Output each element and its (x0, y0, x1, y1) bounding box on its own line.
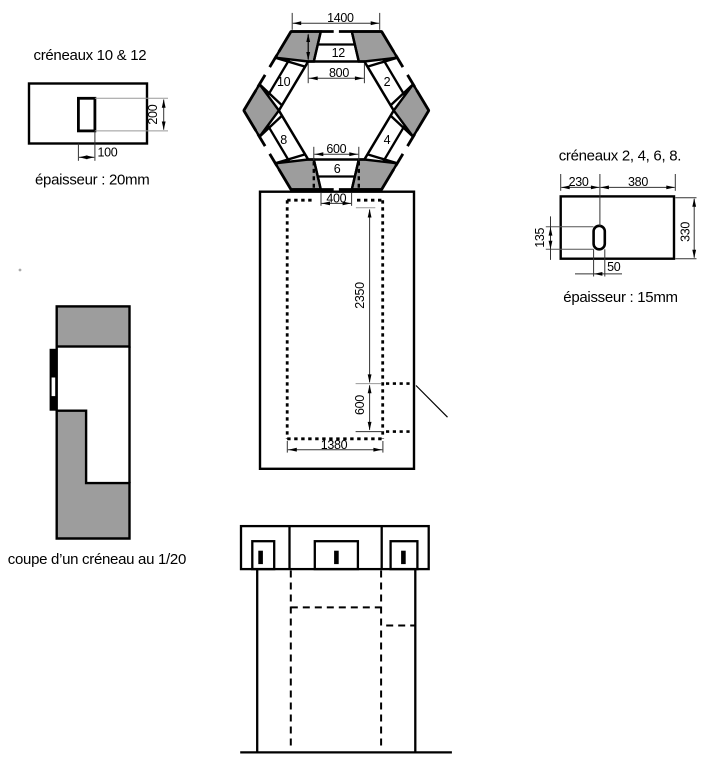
svg-text:135: 135 (533, 227, 547, 247)
svg-text:2350: 2350 (353, 282, 367, 309)
svg-text:800: 800 (329, 66, 349, 80)
svg-text:1400: 1400 (327, 11, 354, 25)
svg-text:6: 6 (334, 162, 341, 176)
svg-text:10: 10 (277, 75, 291, 89)
svg-text:épaisseur : 20mm: épaisseur : 20mm (35, 172, 149, 189)
svg-text:230: 230 (569, 175, 589, 189)
svg-text:200: 200 (146, 104, 160, 124)
svg-text:100: 100 (98, 145, 118, 159)
svg-text:4: 4 (384, 133, 391, 147)
svg-text:épaisseur : 15mm: épaisseur : 15mm (563, 289, 677, 306)
svg-text:330: 330 (679, 222, 693, 242)
svg-text:400: 400 (326, 192, 346, 206)
svg-text:créneaux 2, 4, 6, 8.: créneaux 2, 4, 6, 8. (559, 148, 681, 165)
svg-text:600: 600 (326, 142, 346, 156)
svg-text:12: 12 (332, 46, 346, 60)
svg-text:coupe d’un créneau au 1/20: coupe d’un créneau au 1/20 (8, 551, 186, 568)
svg-text:2: 2 (384, 75, 391, 89)
svg-text:créneaux 10 & 12: créneaux 10 & 12 (34, 47, 147, 64)
svg-text:8: 8 (280, 133, 287, 147)
svg-text:600: 600 (353, 395, 367, 415)
svg-text:1380: 1380 (321, 438, 348, 452)
svg-text:380: 380 (628, 175, 648, 189)
svg-text:50: 50 (607, 260, 621, 274)
